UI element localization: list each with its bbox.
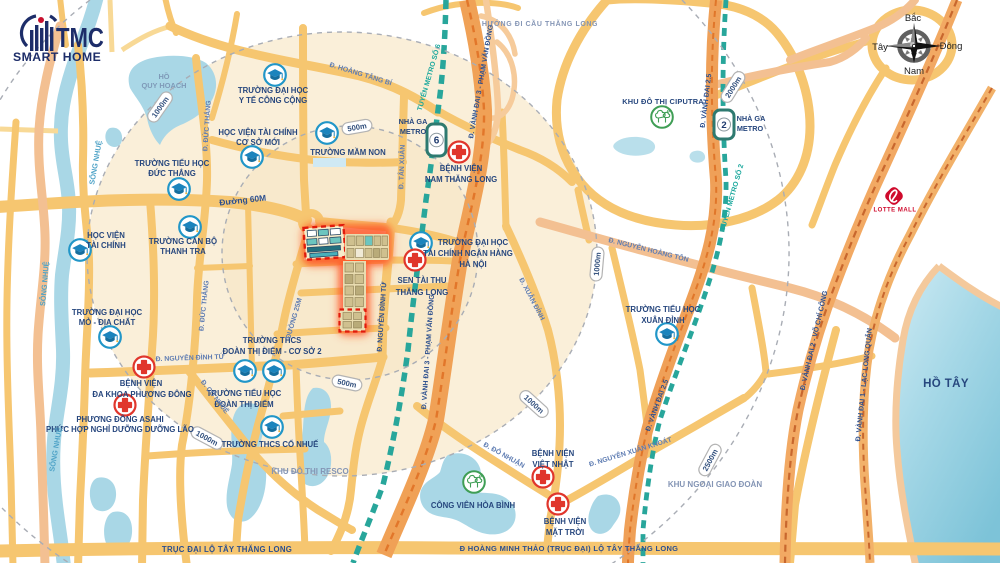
svg-text:Y TẾ CÔNG CỘNG: Y TẾ CÔNG CỘNG (239, 95, 307, 105)
svg-text:TRƯỜNG TIỂU HỌC: TRƯỜNG TIỂU HỌC (626, 305, 701, 314)
svg-text:TMC: TMC (56, 23, 104, 54)
svg-text:ĐỨC THẮNG: ĐỨC THẮNG (148, 169, 196, 178)
svg-text:TRƯỜNG CÁN BỘ: TRƯỜNG CÁN BỘ (149, 237, 217, 246)
svg-text:BỆNH VIỆN: BỆNH VIỆN (532, 449, 575, 458)
svg-text:NAM THĂNG LONG: NAM THĂNG LONG (425, 175, 497, 184)
svg-text:TRỤC ĐẠI LỘ TÂY THĂNG LONG: TRỤC ĐẠI LỘ TÂY THĂNG LONG (162, 545, 292, 554)
svg-text:TRƯỜNG TIỂU HỌC: TRƯỜNG TIỂU HỌC (135, 159, 210, 168)
svg-text:TRƯỜNG THCS CỔ NHUẾ: TRƯỜNG THCS CỔ NHUẾ (222, 439, 319, 449)
svg-text:QUY HOẠCH: QUY HOẠCH (141, 81, 186, 90)
svg-text:TÀI CHÍNH NGÂN HÀNG: TÀI CHÍNH NGÂN HÀNG (423, 249, 513, 258)
svg-text:NHÀ GA: NHÀ GA (737, 114, 767, 123)
svg-text:HỌC VIỆN TÀI CHÍNH: HỌC VIỆN TÀI CHÍNH (218, 128, 298, 137)
svg-text:MỎ - ĐỊA CHẤT: MỎ - ĐỊA CHẤT (79, 317, 136, 327)
svg-text:SMART HOME: SMART HOME (13, 50, 101, 64)
svg-text:TRƯỜNG MẦM NON: TRƯỜNG MẦM NON (310, 147, 386, 157)
svg-text:HÀ NỘI: HÀ NỘI (459, 260, 486, 269)
svg-text:METRO: METRO (737, 124, 764, 133)
svg-text:BỆNH VIỆN: BỆNH VIỆN (544, 517, 587, 526)
svg-text:Đ HOÀNG MINH THẢO (TRỤC ĐẠI) L: Đ HOÀNG MINH THẢO (TRỤC ĐẠI) LỘ TÂY THĂN… (460, 544, 679, 553)
svg-text:CÔNG VIÊN HÒA BÌNH: CÔNG VIÊN HÒA BÌNH (431, 501, 516, 510)
svg-text:TRƯỜNG ĐẠI HỌC: TRƯỜNG ĐẠI HỌC (238, 86, 309, 95)
svg-text:CƠ SỞ MỚI: CƠ SỞ MỚI (236, 138, 280, 147)
svg-text:6: 6 (434, 136, 440, 147)
svg-text:Tây: Tây (872, 42, 888, 53)
svg-text:PHỨC HỢP NGHỈ DƯỠNG DƯỠNG LÃO: PHỨC HỢP NGHỈ DƯỠNG DƯỠNG LÃO (46, 425, 194, 434)
svg-text:KHU ĐÔ THỊ CIPUTRA: KHU ĐÔ THỊ CIPUTRA (622, 97, 704, 106)
svg-text:TRƯỜNG ĐẠI HỌC: TRƯỜNG ĐẠI HỌC (72, 308, 143, 317)
svg-text:2: 2 (721, 120, 726, 131)
svg-text:PHƯƠNG ĐÔNG ASAHI: PHƯƠNG ĐÔNG ASAHI (76, 415, 163, 424)
svg-text:MẶT TRỜI: MẶT TRỜI (546, 528, 584, 537)
svg-text:KHU NGOẠI GIAO ĐOÀN: KHU NGOẠI GIAO ĐOÀN (668, 480, 762, 489)
svg-text:Nam: Nam (904, 66, 924, 77)
svg-text:METRO: METRO (400, 127, 427, 136)
svg-text:Bắc: Bắc (905, 13, 922, 24)
svg-text:ĐOÀN THỊ ĐIỂM - CƠ SỞ 2: ĐOÀN THỊ ĐIỂM - CƠ SỞ 2 (222, 347, 322, 356)
svg-text:XUÂN ĐỈNH: XUÂN ĐỈNH (641, 316, 685, 325)
svg-text:KHU ĐÔ THỊ RESCO: KHU ĐÔ THỊ RESCO (271, 467, 348, 476)
svg-text:THANH TRA: THANH TRA (160, 247, 206, 256)
svg-text:BỆNH VIỆN: BỆNH VIỆN (120, 379, 163, 388)
svg-text:BỆNH VIỆN: BỆNH VIỆN (440, 164, 483, 173)
svg-text:VIỆT NHẬT: VIỆT NHẬT (532, 460, 573, 469)
svg-text:SEN TÀI THU: SEN TÀI THU (398, 276, 447, 285)
svg-text:LOTTE MALL: LOTTE MALL (874, 208, 917, 214)
svg-text:NHÀ GA: NHÀ GA (399, 117, 429, 126)
svg-text:HỌC VIỆN: HỌC VIỆN (87, 231, 125, 240)
svg-text:ĐA KHOA PHƯƠNG ĐÔNG: ĐA KHOA PHƯƠNG ĐÔNG (92, 390, 191, 399)
svg-text:Đông: Đông (940, 41, 963, 52)
svg-text:HỒ TÂY: HỒ TÂY (923, 377, 969, 390)
svg-text:TRƯỜNG ĐẠI HỌC: TRƯỜNG ĐẠI HỌC (438, 238, 509, 247)
svg-text:TÀI CHÍNH: TÀI CHÍNH (86, 241, 126, 250)
svg-text:THĂNG LONG: THĂNG LONG (396, 288, 448, 297)
svg-text:HỒ: HỒ (158, 71, 169, 81)
